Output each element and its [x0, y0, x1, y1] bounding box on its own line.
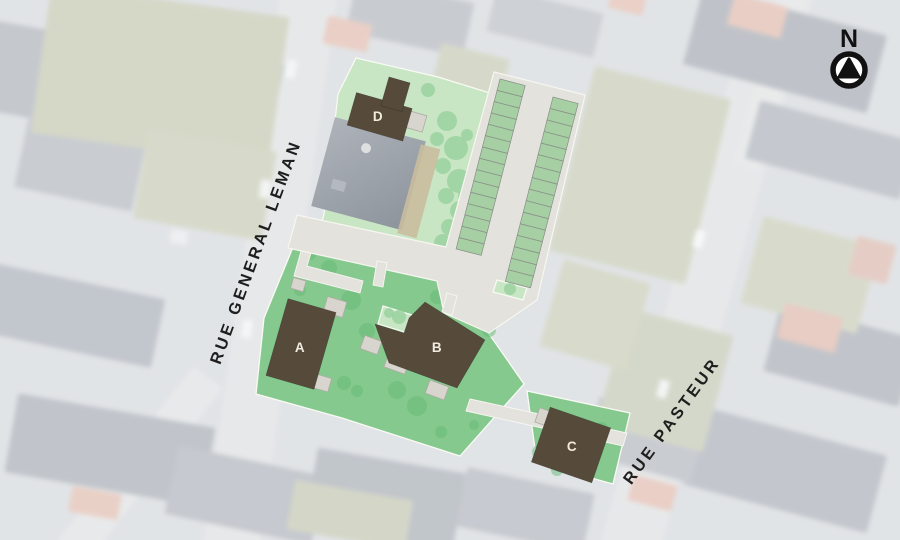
compass-n-label: N [840, 25, 858, 53]
tree [392, 310, 406, 324]
tree [407, 396, 427, 416]
tree [435, 158, 451, 174]
tree [388, 381, 406, 399]
tree [437, 111, 457, 131]
tree [461, 129, 473, 141]
tree [384, 308, 394, 318]
building-c-label: C [567, 439, 577, 454]
building-b-label: B [432, 340, 442, 355]
tree [337, 376, 351, 390]
tree [430, 132, 444, 146]
street-label-rue-pasteur: RUE PASTEUR [620, 354, 724, 488]
building-d-label: D [373, 109, 383, 124]
site-plan-map: A B C D RUE GENERAL LEMAN RUE PASTEUR N [0, 0, 900, 540]
tree [438, 188, 454, 204]
tree [469, 420, 479, 430]
tree [504, 283, 516, 295]
tree [421, 83, 435, 97]
site-plan-overlay: A B C D RUE GENERAL LEMAN RUE PASTEUR N [0, 0, 900, 540]
tree [435, 426, 447, 438]
north-compass-icon: N [833, 25, 865, 86]
building-a-label: A [295, 340, 305, 355]
tree [351, 385, 363, 397]
